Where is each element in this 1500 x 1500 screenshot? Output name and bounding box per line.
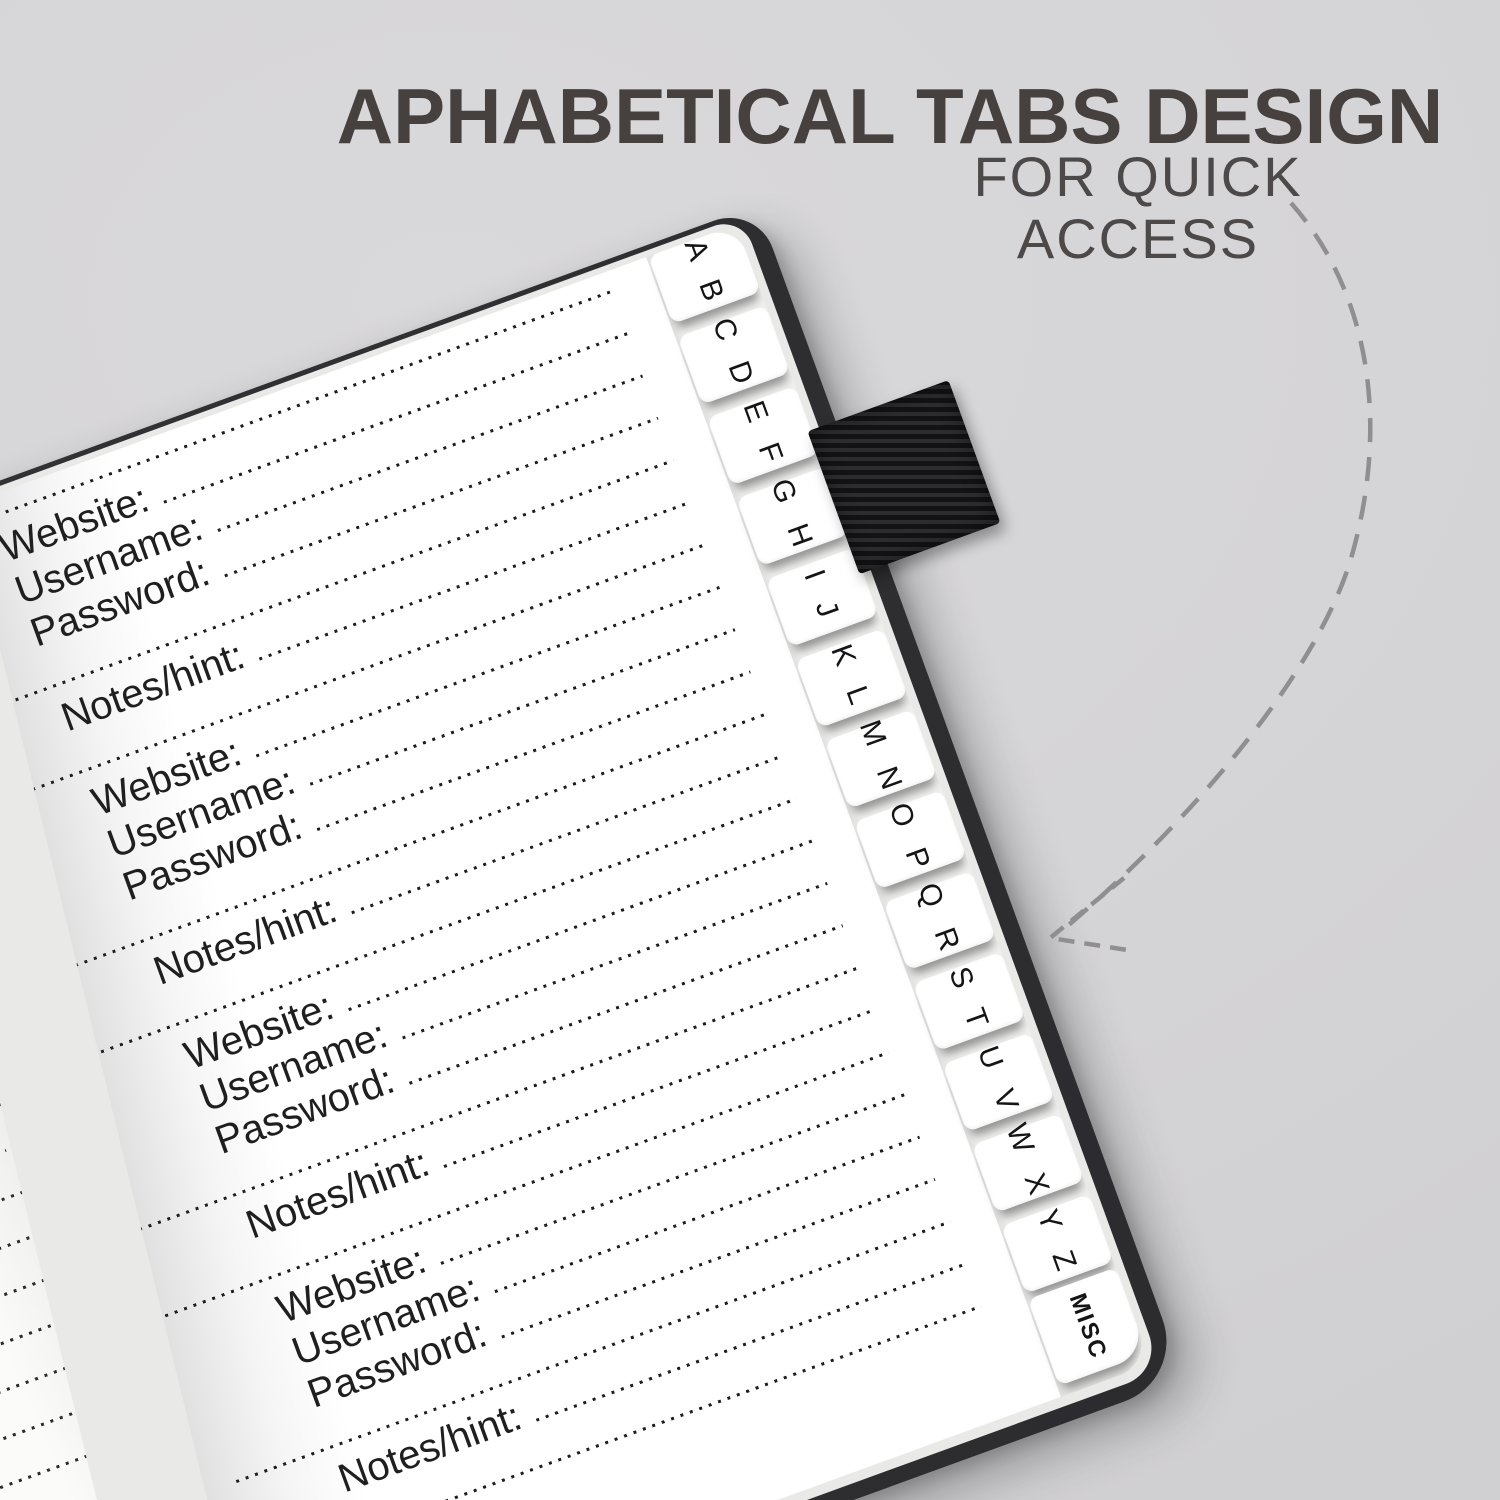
notebook-page: Website:Username:Password:Notes/hint:Web…: [0, 224, 1151, 1500]
tab-label: S T: [943, 963, 995, 1039]
tab-label: E F: [737, 397, 789, 474]
dotted-line: [0, 1319, 66, 1500]
tab-label: K L: [826, 641, 878, 716]
tab-label: G H: [765, 475, 820, 558]
dashed-arrow-curve: [1058, 203, 1370, 934]
dashed-arrow-head: [1050, 878, 1134, 951]
tab-label: O P: [883, 799, 937, 880]
tab-label: M N: [853, 717, 908, 801]
tab-label: I J: [799, 566, 846, 629]
tab-label: W X: [1000, 1120, 1056, 1206]
tab-label: U V: [972, 1042, 1026, 1122]
tab-label: A B: [678, 236, 730, 313]
password-form-rows: Website:Username:Password:Notes/hint:Web…: [0, 224, 736, 758]
page-subtitle: FOR QUICK ACCESS: [878, 146, 1398, 269]
product-image: APHABETICAL TABS DESIGN FOR QUICK ACCESS…: [0, 0, 1500, 1500]
tab-label: Y Z: [1031, 1206, 1083, 1282]
tab-label: C D: [707, 314, 761, 395]
dotted-line: [0, 1149, 7, 1402]
notebook-cover: Website:Username:Password:Notes/hint:Web…: [0, 205, 1185, 1500]
tab-label: Q R: [912, 879, 967, 962]
tab-label: MISC: [1065, 1291, 1111, 1363]
